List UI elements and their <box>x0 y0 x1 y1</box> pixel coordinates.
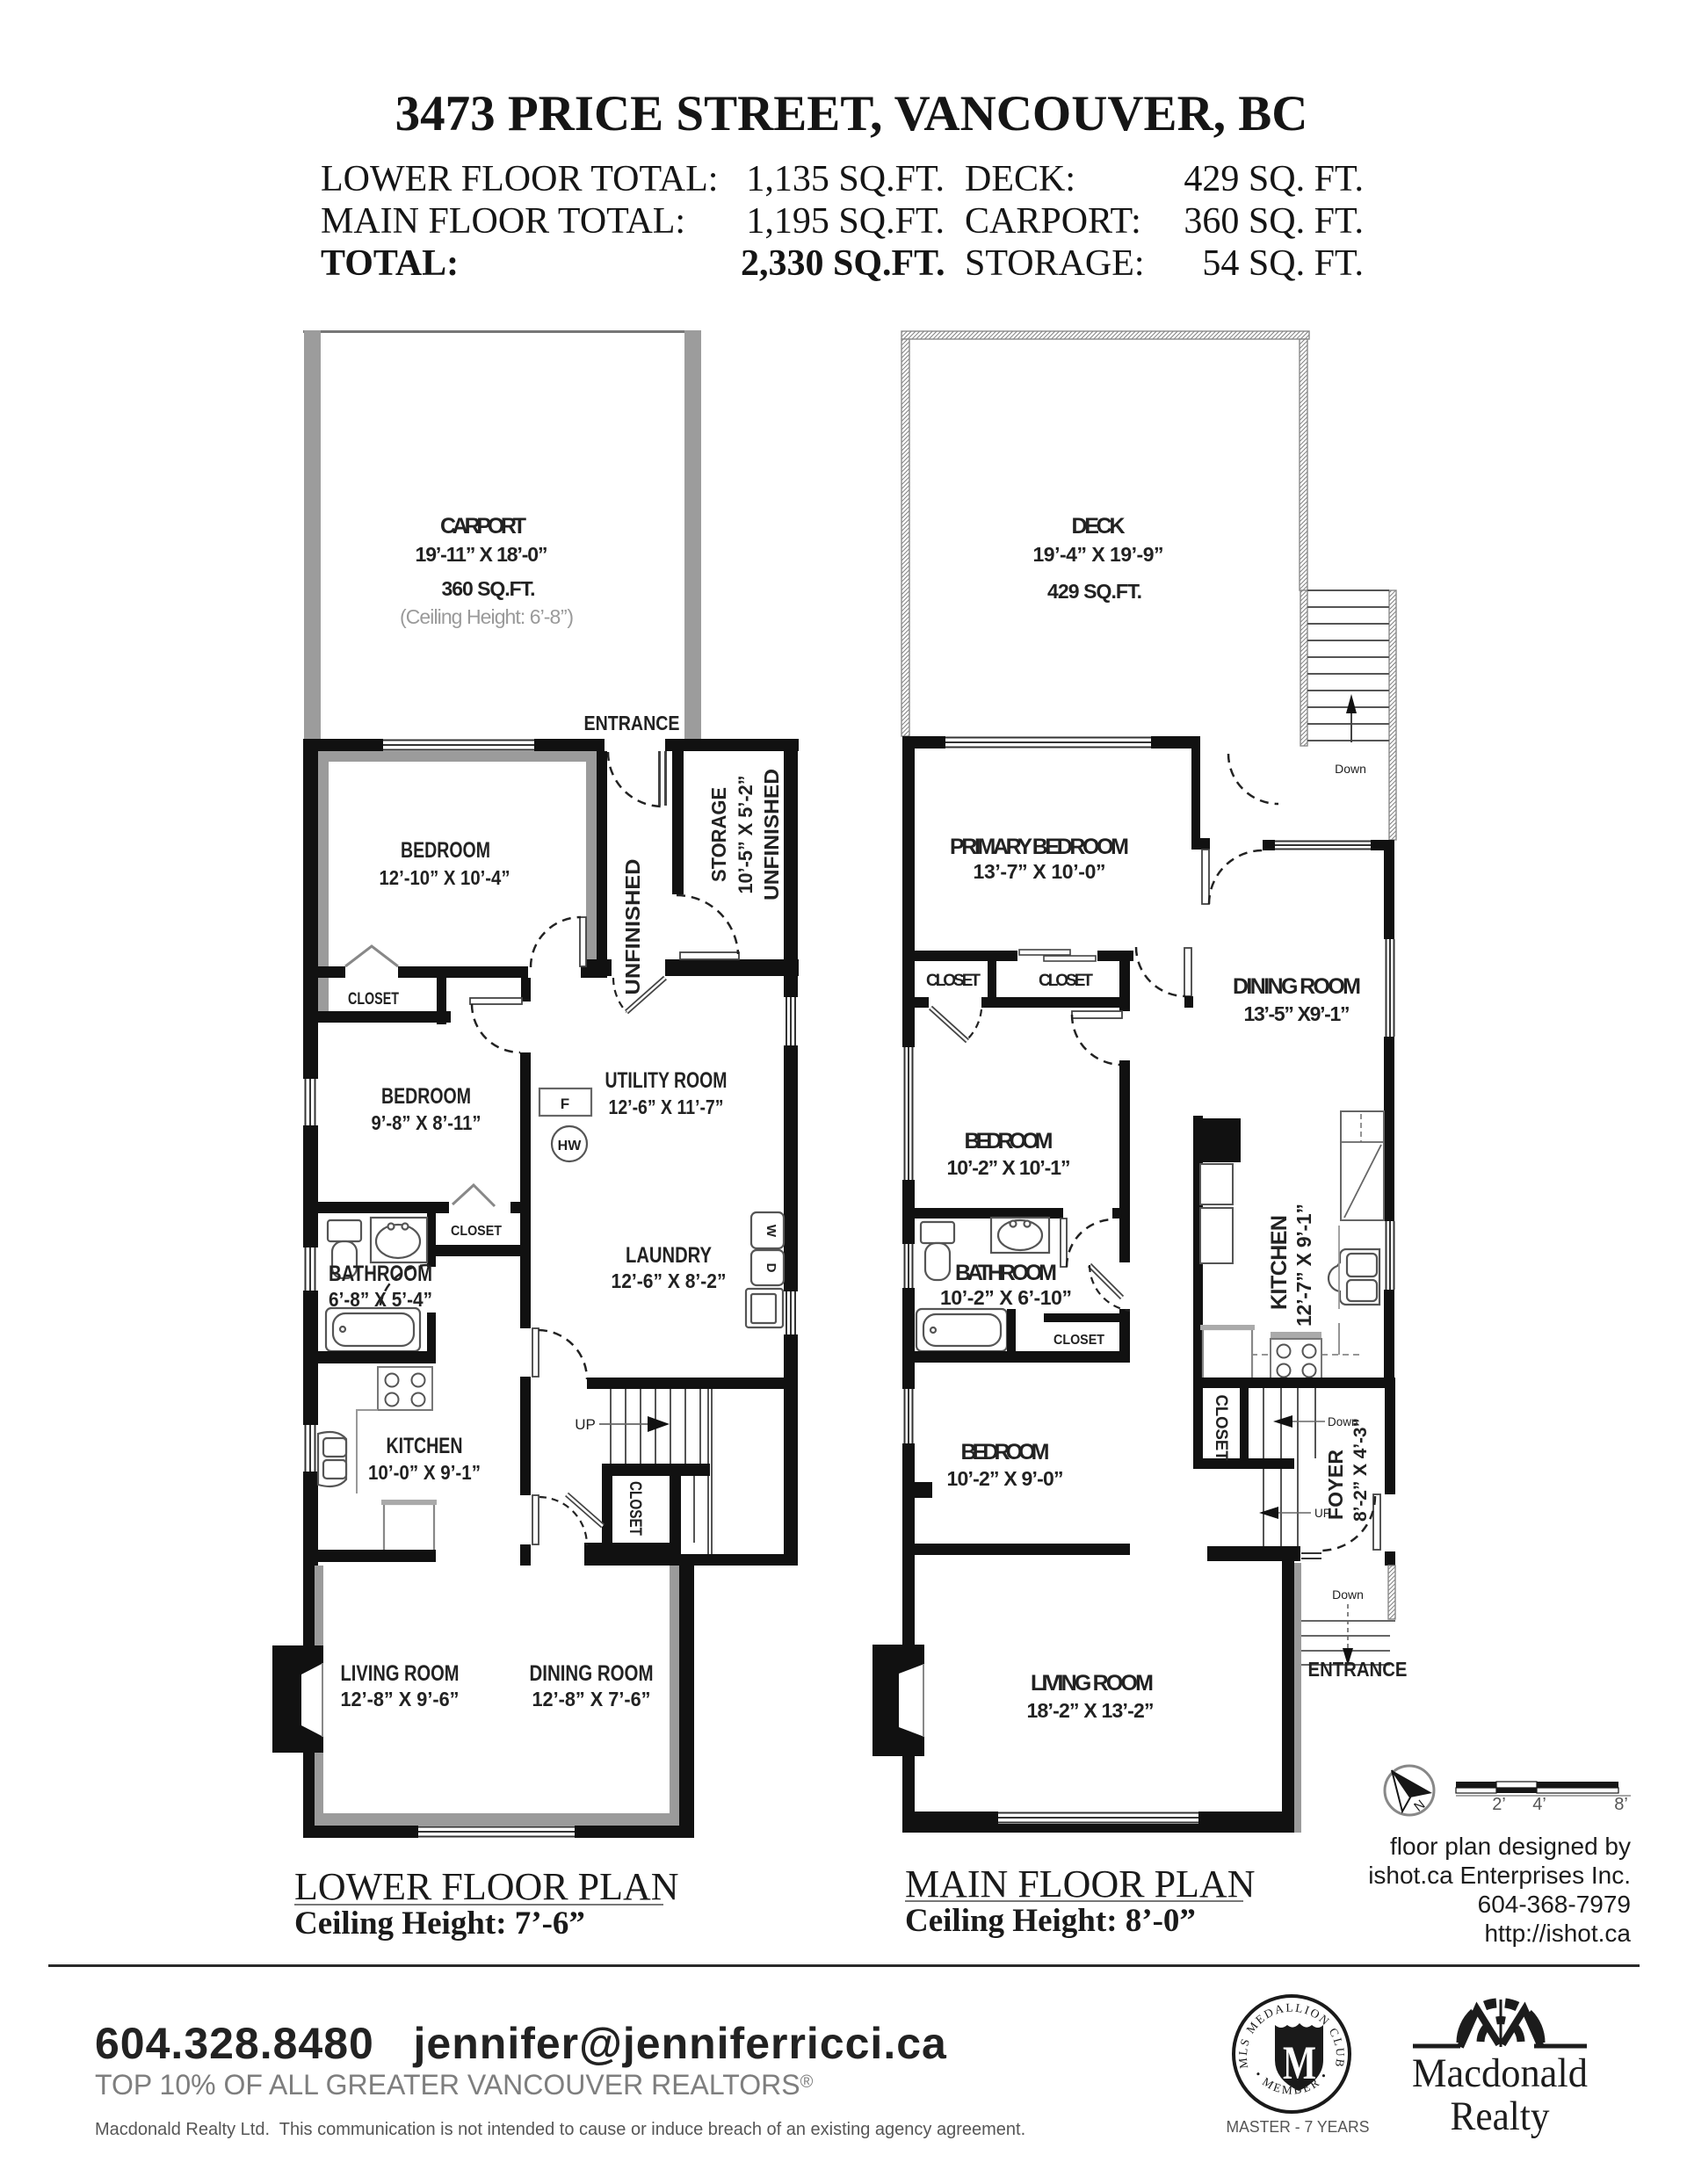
svg-text:Macdonald: Macdonald <box>1412 2050 1588 2096</box>
svg-text:6’-8” X 5’-4”: 6’-8” X 5’-4” <box>329 1288 432 1311</box>
svg-text:Realty: Realty <box>1451 2094 1550 2139</box>
svg-text:BATHROOM: BATHROOM <box>955 1261 1057 1285</box>
svg-text:KITCHEN: KITCHEN <box>387 1434 463 1458</box>
svg-text:10’-2” X 10’-1”: 10’-2” X 10’-1” <box>947 1156 1071 1179</box>
svg-text:DECK: DECK <box>1072 514 1126 539</box>
svg-text:UTILITY ROOM: UTILITY ROOM <box>605 1068 728 1093</box>
svg-text:CARPORT: CARPORT <box>440 514 526 539</box>
svg-text:KITCHEN: KITCHEN <box>1267 1215 1292 1310</box>
svg-text:Down: Down <box>1335 762 1366 776</box>
svg-text:BEDROOM: BEDROOM <box>381 1084 471 1109</box>
svg-text:D: D <box>764 1263 778 1273</box>
svg-text:19’-4” X 19’-9”: 19’-4” X 19’-9” <box>1033 543 1164 566</box>
svg-text:12’-8” X 9’-6”: 12’-8” X 9’-6” <box>341 1688 460 1710</box>
svg-text:CLOSET: CLOSET <box>926 972 981 990</box>
svg-text:360 SQ.FT.: 360 SQ.FT. <box>442 577 536 600</box>
svg-text:MASTER - 7 YEARS: MASTER - 7 YEARS <box>1227 2118 1370 2136</box>
svg-text:W: W <box>764 1225 778 1238</box>
svg-text:12’-10” X 10’-4”: 12’-10” X 10’-4” <box>380 866 510 889</box>
svg-text:12’-6” X 11’-7”: 12’-6” X 11’-7” <box>609 1096 724 1118</box>
svg-text:13’-5” X9’-1”: 13’-5” X9’-1” <box>1244 1002 1350 1025</box>
svg-text:CLOSET: CLOSET <box>1053 1333 1104 1348</box>
svg-text:CLOSET: CLOSET <box>1039 972 1093 990</box>
svg-text:BATHROOM: BATHROOM <box>329 1262 432 1286</box>
svg-text:N: N <box>1411 1797 1428 1815</box>
svg-text:UNFINISHED: UNFINISHED <box>760 769 783 900</box>
svg-text:CLOSET: CLOSET <box>1212 1395 1230 1461</box>
svg-text:BEDROOM: BEDROOM <box>401 838 490 863</box>
svg-text:10’-0” X 9’-1”: 10’-0” X 9’-1” <box>368 1461 481 1484</box>
svg-text:429 SQ.FT.: 429 SQ.FT. <box>1047 580 1142 603</box>
svg-text:CLOSET: CLOSET <box>626 1481 644 1536</box>
svg-text:8’: 8’ <box>1614 1795 1628 1814</box>
svg-text:LIVING ROOM: LIVING ROOM <box>341 1661 460 1686</box>
svg-text:10’-2” X 6’-10”: 10’-2” X 6’-10” <box>940 1286 1072 1309</box>
svg-text:FOYER: FOYER <box>1324 1450 1347 1520</box>
svg-text:8’-2” X 4’-3”: 8’-2” X 4’-3” <box>1350 1418 1371 1522</box>
svg-text:DINING ROOM: DINING ROOM <box>1233 974 1361 999</box>
svg-text:ENTRANCE: ENTRANCE <box>584 712 680 734</box>
svg-text:12’-6” X 8’-2”: 12’-6” X 8’-2” <box>612 1269 727 1292</box>
svg-text:LIVING ROOM: LIVING ROOM <box>1031 1671 1154 1696</box>
svg-text:F: F <box>561 1096 569 1112</box>
svg-text:STORAGE: STORAGE <box>707 787 730 882</box>
svg-text:13’-7” X 10’-0”: 13’-7” X 10’-0” <box>974 860 1106 883</box>
svg-text:10’-5” X 5’-2”: 10’-5” X 5’-2” <box>735 776 757 894</box>
svg-text:Down: Down <box>1332 1587 1364 1602</box>
svg-text:LAUNDRY: LAUNDRY <box>626 1243 712 1268</box>
svg-text:(Ceiling Height: 6’-8’’): (Ceiling Height: 6’-8’’) <box>400 605 574 628</box>
svg-text:M: M <box>1283 2036 1316 2089</box>
svg-text:12’-7” X 9’-1”: 12’-7” X 9’-1” <box>1292 1204 1315 1327</box>
svg-text:DINING ROOM: DINING ROOM <box>530 1661 654 1686</box>
svg-text:2’: 2’ <box>1492 1795 1506 1814</box>
svg-text:19’-11” X 18’-0”: 19’-11” X 18’-0” <box>416 543 548 566</box>
svg-text:BEDROOM: BEDROOM <box>961 1440 1050 1464</box>
svg-text:HW: HW <box>558 1139 583 1153</box>
svg-text:UNFINISHED: UNFINISHED <box>621 859 644 995</box>
svg-text:9’-8” X 8’-11”: 9’-8” X 8’-11” <box>372 1111 481 1134</box>
svg-text:CLOSET: CLOSET <box>348 990 399 1009</box>
svg-text:UP: UP <box>575 1416 596 1433</box>
svg-text:PRIMARY BEDROOM: PRIMARY BEDROOM <box>950 835 1129 859</box>
svg-text:10’-2” X 9’-0”: 10’-2” X 9’-0” <box>947 1467 1064 1490</box>
svg-text:18’-2” X 13’-2”: 18’-2” X 13’-2” <box>1027 1699 1155 1722</box>
svg-text:12’-8” X 7’-6”: 12’-8” X 7’-6” <box>532 1688 651 1710</box>
svg-text:4’: 4’ <box>1532 1795 1546 1814</box>
svg-text:CLOSET: CLOSET <box>451 1224 502 1239</box>
svg-text:ENTRANCE: ENTRANCE <box>1308 1658 1408 1681</box>
svg-text:BEDROOM: BEDROOM <box>965 1129 1053 1153</box>
